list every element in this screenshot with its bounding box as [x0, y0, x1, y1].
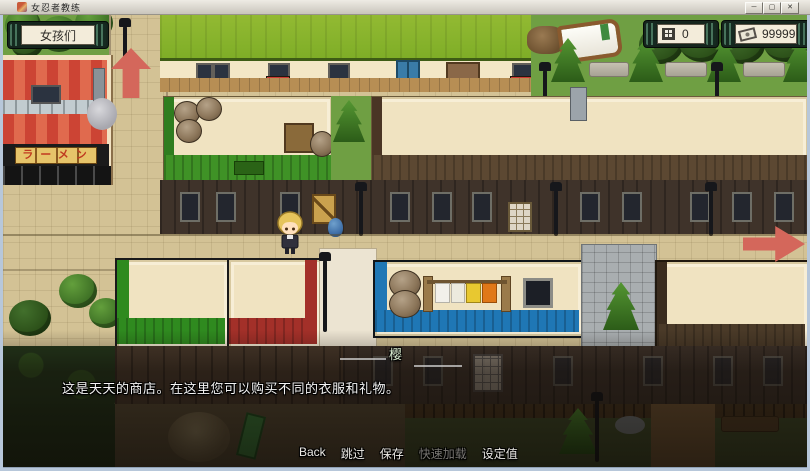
lamppost	[554, 190, 558, 236]
lamppost	[709, 190, 713, 236]
shoji-door	[473, 354, 503, 392]
building-green-roof	[160, 14, 531, 92]
shop-window	[216, 192, 236, 222]
day-counter: 0	[643, 20, 719, 48]
girls-button[interactable]: 女孩们	[7, 21, 109, 49]
frame-cap	[706, 23, 716, 45]
roof-trim	[229, 318, 317, 344]
shop-window	[622, 192, 642, 222]
barrel	[389, 290, 421, 318]
hanging-cloth-white	[435, 283, 450, 303]
roof-trim	[372, 155, 807, 181]
road-edge	[3, 234, 807, 236]
shop-window	[423, 356, 443, 386]
menu-item-settings[interactable]: 设定值	[482, 445, 518, 462]
rooftop-brown-trim	[371, 96, 807, 182]
frame-cap	[646, 23, 656, 45]
frame-cap	[10, 24, 20, 46]
dialog-menu: Back 跳过 保存 快速加载 设定值	[299, 445, 518, 462]
name-line	[340, 358, 386, 360]
roof-trim	[117, 318, 225, 344]
barrel	[176, 119, 202, 143]
ramen-sign: ラーメン	[15, 147, 97, 164]
hanging-cloth-white	[451, 283, 465, 303]
rooftop-green-building	[115, 258, 231, 350]
menu-item-save[interactable]: 保存	[380, 445, 404, 462]
app-icon	[17, 2, 27, 12]
calendar-grid-icon	[662, 28, 675, 40]
game-viewport: ラーメン	[3, 14, 807, 467]
up-arrow[interactable]	[111, 48, 151, 98]
lamppost	[595, 400, 599, 462]
window	[31, 85, 61, 104]
shop-window	[713, 356, 733, 386]
roof-trim	[305, 260, 317, 344]
shop-window	[643, 356, 663, 386]
hanging-cloth-orange	[482, 283, 497, 303]
green-roof	[160, 14, 531, 61]
menu-item-skip[interactable]: 跳过	[341, 445, 365, 462]
roof-window-panel	[523, 278, 553, 308]
shop-window	[732, 192, 752, 222]
shop-window	[472, 192, 492, 222]
shoji-door	[508, 202, 532, 232]
money-counter-value: 99999	[762, 27, 795, 41]
window-title: 女忍者教练	[31, 1, 81, 14]
barrel	[196, 97, 222, 121]
tree	[9, 300, 51, 336]
dirt-path	[651, 404, 715, 467]
day-counter-panel: 0	[657, 24, 705, 44]
shop-window	[774, 192, 794, 222]
shop-window	[432, 192, 452, 222]
lamppost	[323, 260, 327, 332]
dialog-text: 这是天天的商店。在这里您可以购买不同的衣服和礼物。	[62, 378, 400, 397]
blue-door	[396, 60, 420, 80]
girls-button-label: 女孩们	[21, 25, 95, 45]
frame-cap	[96, 24, 106, 46]
stone-bench	[743, 62, 785, 77]
menu-item-back[interactable]: Back	[299, 445, 326, 462]
player-character	[275, 210, 305, 256]
shop-window	[180, 192, 200, 222]
chimney	[570, 87, 587, 121]
speaker-name: 樱	[389, 344, 402, 363]
lamppost	[359, 190, 363, 236]
money-counter-panel: 99999	[735, 24, 797, 44]
shop-window	[690, 192, 710, 222]
steam-cloud	[87, 98, 117, 130]
shop-front	[3, 166, 111, 185]
light-wall	[319, 248, 377, 348]
frame-cap	[724, 23, 734, 45]
storefront-row-bottom	[343, 346, 807, 404]
well	[168, 412, 230, 462]
title-bar: 女忍者教练 ─ ▢ ✕	[0, 0, 810, 15]
rooftop-green-trim	[163, 96, 333, 182]
maximize-button[interactable]: ▢	[763, 2, 781, 14]
stone-bench	[589, 62, 629, 77]
hanging-cloth-yellow	[466, 283, 481, 303]
roof-hatch	[284, 123, 314, 153]
money-counter: 99999	[721, 20, 807, 48]
rooftop-blue-building	[373, 260, 585, 338]
hedge	[3, 404, 115, 467]
roof-vent	[234, 161, 264, 175]
shop-window	[553, 356, 573, 386]
name-line	[414, 365, 462, 367]
rooftop-red-building	[227, 258, 323, 350]
shop-window	[580, 192, 600, 222]
wood-deck	[160, 78, 531, 92]
shop-window	[763, 356, 783, 386]
minimize-button[interactable]: ─	[745, 2, 763, 14]
banknote-icon	[738, 27, 757, 42]
day-counter-value: 0	[682, 27, 689, 41]
stone-bench	[665, 62, 707, 77]
close-button[interactable]: ✕	[781, 2, 799, 14]
shop-sign-band: ラーメン	[3, 144, 109, 166]
wood-bench	[721, 416, 779, 432]
tree	[59, 274, 97, 308]
menu-item-quickload: 快速加载	[419, 445, 467, 462]
frame-cap	[798, 23, 807, 45]
rock	[615, 416, 645, 434]
shop-window	[390, 192, 410, 222]
